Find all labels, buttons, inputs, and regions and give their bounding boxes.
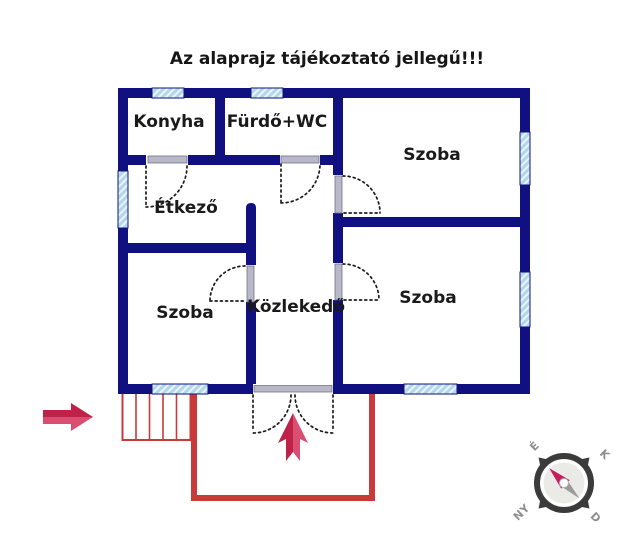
room-label-szoba-top-right: Szoba (403, 145, 460, 165)
disclaimer-title: Az alaprajz tájékoztató jellegű!!! (170, 49, 484, 69)
window-hatch (404, 384, 457, 394)
stairs (123, 392, 191, 440)
room-label-konyha: Konyha (133, 112, 204, 132)
room-label-kozlekedo: Közlekedő (247, 297, 345, 317)
door-jamb (335, 264, 342, 300)
floorplan-canvas: Az alaprajz tájékoztató jellegű!!! (0, 0, 640, 551)
window-hatch (251, 88, 283, 98)
compass-pivot (560, 479, 569, 488)
door-jamb (148, 156, 187, 163)
window-hatch (520, 272, 530, 327)
door-jamb (335, 176, 342, 213)
room-label-etkezo: Étkező (154, 196, 218, 218)
window-hatch (520, 132, 530, 185)
window-hatch (152, 384, 208, 394)
room-label-furdo-wc: Fürdő+WC (227, 112, 328, 132)
window-hatch (118, 171, 128, 228)
room-label-szoba-bottom-right: Szoba (399, 288, 456, 308)
entrance-sill (254, 386, 332, 393)
room-label-szoba-bottom-left: Szoba (156, 303, 213, 323)
floorplan-page: Az alaprajz tájékoztató jellegű!!! (0, 0, 640, 551)
window-hatch (152, 88, 184, 98)
door-jamb (281, 156, 319, 163)
